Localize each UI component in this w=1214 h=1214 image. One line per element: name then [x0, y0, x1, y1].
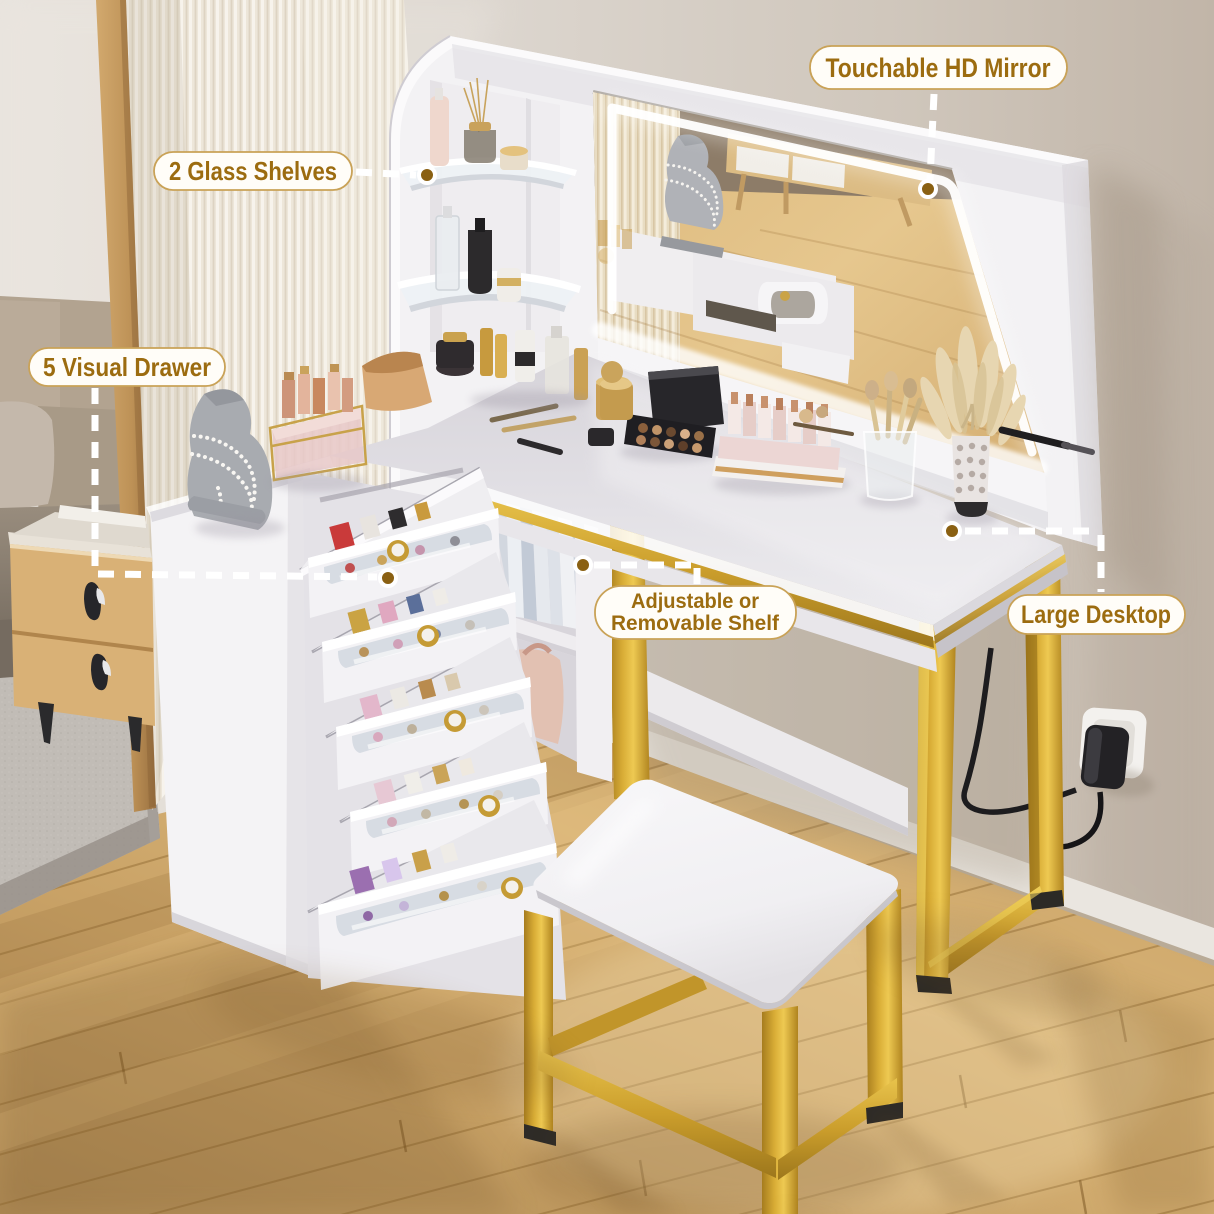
svg-text:Removable Shelf: Removable Shelf [611, 612, 780, 635]
svg-text:Touchable HD Mirror: Touchable HD Mirror [826, 53, 1051, 83]
svg-text:Large Desktop: Large Desktop [1021, 601, 1171, 629]
svg-text:2 Glass Shelves: 2 Glass Shelves [169, 156, 337, 186]
svg-text:5 Visual Drawer: 5 Visual Drawer [43, 352, 211, 382]
svg-text:Adjustable or: Adjustable or [631, 590, 759, 613]
